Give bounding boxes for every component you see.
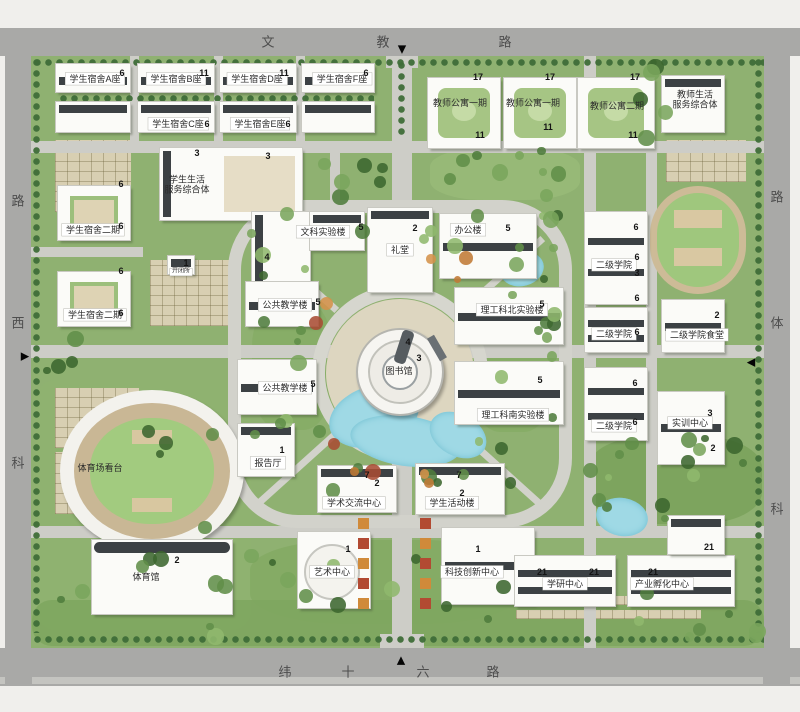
label-teacher-apt-1: 教师公寓一期 (433, 98, 487, 108)
building-roof-bar (665, 79, 721, 87)
flower-planter (358, 578, 369, 589)
tree (332, 189, 348, 205)
floor-count: 7 (364, 470, 369, 480)
tree (206, 428, 219, 441)
floor-count: 6 (633, 222, 638, 232)
floor-count: 6 (285, 119, 290, 129)
tree (749, 623, 766, 640)
tree (51, 359, 66, 374)
tree (296, 326, 305, 335)
parking-south-b (516, 610, 701, 619)
floor-count: 5 (537, 375, 542, 385)
flower-planter (358, 558, 369, 569)
road-name-north-2: 路 (498, 32, 511, 51)
tree (334, 174, 350, 190)
hedge-bottom (32, 634, 764, 645)
tree (475, 437, 483, 445)
road-name-south-2: 六 (416, 662, 429, 681)
label-public-teaching-north: 公共教学楼 (258, 299, 311, 311)
tree (634, 616, 644, 626)
label-lecture-hall: 报告厅 (250, 457, 285, 469)
track-field-b (674, 248, 722, 266)
tree (290, 355, 306, 371)
floor-count: 6 (632, 378, 637, 388)
floor-count: 6 (118, 221, 123, 231)
floor-count: 11 (279, 68, 289, 78)
floor-count: 5 (539, 299, 544, 309)
tree (540, 275, 548, 283)
label-dorm-b: 学生宿舍B座 (146, 73, 205, 85)
entrance-arrow-east-gate: ◀ (747, 356, 755, 369)
flower-planter (358, 598, 369, 609)
floor-count: 2 (174, 555, 179, 565)
road-name-south-0: 纬 (278, 662, 291, 681)
tree (142, 425, 155, 438)
floor-count: 17 (473, 72, 483, 82)
floor-count: 5 (315, 297, 320, 307)
tree (75, 584, 90, 599)
floor-count: 2 (459, 488, 464, 498)
label-college-upper: 二级学院 (592, 259, 636, 271)
floor-count: 1 (183, 258, 188, 268)
floor-count: 1 (345, 544, 350, 554)
tree (655, 498, 670, 513)
entrance-arrow-west-gate: ▶ (21, 350, 29, 363)
label-art-center: 艺术中心 (310, 566, 354, 578)
stadium-goal-south (132, 498, 172, 512)
floor-count: 6 (204, 119, 209, 129)
tree (280, 207, 294, 221)
floor-count: 21 (589, 567, 599, 577)
label-dorm-f: 学生宿舍F座 (313, 73, 372, 85)
floor-count: 21 (537, 567, 547, 577)
floor-count: 3 (416, 353, 421, 363)
building-footprint-34 (428, 78, 500, 148)
tree (43, 367, 50, 374)
tree (509, 257, 524, 272)
hedge-axis-north (396, 60, 408, 138)
tree (258, 316, 270, 328)
tree (739, 459, 747, 467)
label-public-teaching-south: 公共教学楼 (258, 382, 311, 394)
floor-count: 5 (358, 222, 363, 232)
tree (539, 168, 547, 176)
tree (247, 229, 256, 238)
building-roof-bar (588, 238, 644, 245)
floor-count: 2 (412, 223, 417, 233)
label-sci-north-lab: 理工科北实验楼 (476, 304, 547, 316)
label-training-center: 实训中心 (668, 417, 712, 429)
tree (685, 632, 694, 641)
label-substation: 开闭所 (170, 269, 192, 276)
tree (244, 549, 259, 564)
tree (320, 297, 333, 310)
building-roof-bar (631, 570, 731, 577)
floor-count: 4 (405, 337, 410, 347)
floor-count: 21 (648, 567, 658, 577)
building-roof-bar (241, 427, 291, 435)
road-name-west-1: 西 (11, 313, 24, 332)
tree (551, 166, 567, 182)
tree (447, 238, 463, 254)
label-teacher-apt-3: 教师公寓二期 (590, 101, 644, 111)
label-college-mid: 二级学院 (592, 328, 636, 340)
hedge-dorm-row (58, 93, 374, 101)
tree (456, 154, 469, 167)
building-footprint-4 (56, 102, 130, 132)
tree (726, 437, 743, 454)
tree (471, 209, 484, 222)
tree (495, 442, 508, 455)
tree (57, 596, 65, 604)
floor-count: 2 (710, 443, 715, 453)
tree (472, 151, 481, 160)
track-ring (650, 186, 746, 294)
track-northeast (648, 184, 748, 296)
building-roof-bar (305, 105, 371, 113)
tree (540, 189, 553, 202)
floor-count: 4 (264, 252, 269, 262)
flower-planter (358, 538, 369, 549)
road-name-west-2: 科 (11, 453, 24, 472)
tree (615, 450, 624, 459)
tree (350, 467, 359, 476)
label-dorm-phase2-a: 学生宿舍二期 (62, 224, 124, 236)
floor-count: 6 (634, 252, 639, 262)
road-name-north-1: 教 (376, 32, 389, 51)
floor-count: 3 (265, 151, 270, 161)
building-roof-bar (59, 105, 127, 113)
tree (547, 351, 557, 361)
floor-count: 1 (279, 445, 284, 455)
flower-planter (420, 578, 431, 589)
building-roof-bar (141, 105, 211, 113)
building-footprint-32 (662, 300, 724, 352)
hedge-left (31, 57, 41, 633)
floor-count: 6 (634, 327, 639, 337)
floor-count: 5 (310, 379, 315, 389)
hedge-right (753, 57, 764, 633)
label-auditorium: 礼堂 (387, 244, 413, 256)
label-dorm-d: 学生宿舍D座 (227, 73, 287, 85)
tree (459, 251, 473, 265)
tree (280, 572, 296, 588)
label-gymnasium: 体育馆 (132, 572, 159, 582)
road-name-south-1: 十 (341, 662, 354, 681)
tree (424, 478, 434, 488)
floor-count: 6 (119, 68, 124, 78)
floor-count: 6 (634, 293, 639, 303)
tree (328, 438, 340, 450)
label-research-center: 学研中心 (543, 578, 587, 590)
tree (537, 147, 545, 155)
tree (681, 455, 695, 469)
floor-count: 6 (363, 68, 368, 78)
floor-count: 7 (456, 470, 461, 480)
floor-count: 21 (704, 542, 714, 552)
tree (548, 413, 557, 422)
road-name-north-0: 文 (261, 32, 274, 51)
label-college-canteen: 二级学院食堂 (666, 329, 728, 341)
dorm-inner-roof (74, 200, 114, 226)
label-tech-innovation-center: 科技创新中心 (441, 566, 503, 578)
tree (583, 463, 598, 478)
floor-count: 5 (505, 223, 510, 233)
label-industry-incubator: 产业孵化中心 (631, 578, 693, 590)
flower-planter (420, 558, 431, 569)
floor-count: 11 (475, 130, 485, 140)
road-south-sidewalk (0, 677, 800, 684)
label-liberal-arts-lab: 文科实验楼 (296, 226, 349, 238)
label-teacher-apt-2: 教师公寓一期 (506, 98, 560, 108)
tree (495, 370, 508, 383)
floor-count: 17 (630, 72, 640, 82)
tree (543, 211, 560, 228)
label-teacher-life-complex: 教师生活 服务综合体 (672, 90, 717, 111)
flower-planter (358, 518, 369, 529)
floor-count: 3 (194, 148, 199, 158)
floor-count: 17 (545, 72, 555, 82)
building-roof-bar (588, 320, 644, 327)
entrance-arrow-north-gate: ▼ (398, 43, 406, 56)
floor-count: 11 (199, 68, 209, 78)
floor-count: 2 (374, 478, 379, 488)
tree (301, 265, 309, 273)
tree (159, 436, 172, 449)
tree (377, 163, 387, 173)
tree (701, 435, 709, 443)
tree (207, 628, 223, 644)
label-academic-exchange-center: 学术交流中心 (323, 497, 385, 509)
tree (67, 331, 83, 347)
floor-count: 6 (118, 308, 123, 318)
label-college-lower: 二级学院 (592, 420, 636, 432)
tree (444, 173, 456, 185)
label-stadium-stands: 体育场看台 (77, 463, 122, 473)
building-roof-bar (671, 519, 721, 527)
campus-master-plan: 学生宿舍A座学生宿舍B座学生宿舍D座学生宿舍F座学生宿舍C座学生宿舍E座学生生活… (0, 0, 800, 712)
label-student-life-complex: 学生生活 服务综合体 (164, 175, 209, 196)
track-field-a (674, 210, 722, 228)
tree (534, 326, 543, 335)
floor-count: 1 (475, 544, 480, 554)
tree (374, 176, 386, 188)
tree (330, 597, 346, 613)
building-roof-bar (313, 215, 361, 223)
tree (687, 469, 700, 482)
label-sci-south-lab: 理工科南实验楼 (477, 409, 548, 421)
floor-count: 11 (543, 122, 553, 132)
building-footprint-35 (504, 78, 576, 148)
floor-count: 3 (634, 268, 639, 278)
flower-planter (420, 598, 431, 609)
tree (313, 425, 326, 438)
flower-planter (420, 538, 431, 549)
building-roof-bar (223, 105, 293, 113)
tree (542, 332, 552, 342)
tree (206, 623, 213, 630)
building-roof-bar (458, 390, 560, 398)
tree (496, 580, 510, 594)
floor-count: 6 (632, 417, 637, 427)
floor-count: 6 (118, 179, 123, 189)
building-footprint-7 (302, 102, 374, 132)
label-dorm-a: 学生宿舍A座 (65, 73, 124, 85)
entrance-arrow-south-gate: ▲ (397, 654, 405, 667)
road-name-east-2: 科 (770, 499, 783, 518)
tree (681, 432, 697, 448)
label-library: 图书馆 (385, 366, 412, 376)
floor-count: 11 (628, 130, 638, 140)
label-student-activity-building: 学生活动楼 (425, 497, 478, 509)
tree (426, 254, 436, 264)
road-name-east-1: 体 (770, 313, 783, 332)
building-footprint-28 (668, 516, 724, 554)
campus-road-11 (31, 247, 143, 257)
road-name-east-0: 路 (770, 187, 783, 206)
tree (269, 559, 276, 566)
label-dorm-c: 学生宿舍C座 (148, 118, 208, 130)
road-name-west-0: 路 (11, 191, 24, 210)
floor-count: 3 (707, 408, 712, 418)
complex-patio (224, 156, 295, 212)
tree (275, 418, 286, 429)
label-dorm-phase2-b: 学生宿舍二期 (64, 309, 126, 321)
floor-count: 2 (714, 310, 719, 320)
road-name-south-3: 路 (486, 662, 499, 681)
label-admin-building: 办公楼 (450, 224, 485, 236)
label-dorm-e: 学生宿舍E座 (230, 118, 289, 130)
tree (441, 601, 452, 612)
tree (198, 521, 212, 535)
flower-planter (420, 518, 431, 529)
floor-count: 6 (118, 266, 123, 276)
tree (725, 610, 733, 618)
tree (250, 430, 260, 440)
tree (217, 579, 232, 594)
building-roof-bar (371, 211, 429, 219)
tree (419, 234, 429, 244)
building-roof-bar (588, 388, 644, 395)
road-east (763, 28, 790, 686)
